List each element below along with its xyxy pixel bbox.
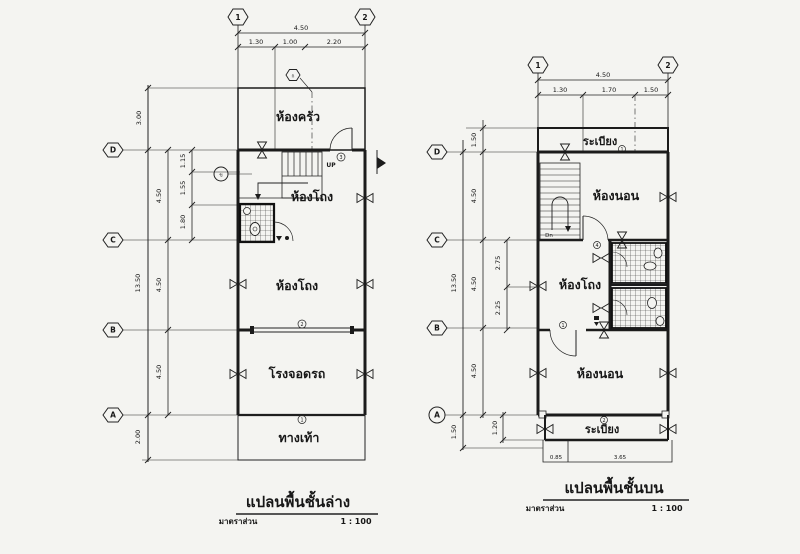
dim-sub-2: 1.55	[179, 181, 187, 195]
left-side-dimensions: 3.00 13.50 4.50 4.50 4.50 1.15 1.55 1.80…	[103, 85, 252, 463]
right-title-block: แปลนพื้นชั้นบน มาตราส่วน 1 : 100	[526, 476, 689, 513]
wall-tag-c-label: 4	[595, 243, 598, 249]
left-bathroom	[240, 204, 293, 242]
left-scale-label: มาตราส่วน	[219, 517, 258, 526]
dim-row-2: 4.50	[155, 278, 163, 292]
sink-icon	[244, 208, 251, 215]
right-scale-value: 1 : 100	[651, 504, 682, 513]
dim-row-2: 4.50	[470, 277, 478, 291]
toilet-icon	[648, 298, 657, 309]
grid-bubble-c-label: C	[110, 236, 116, 245]
room-label-kitchen: ห้องครัว	[276, 109, 320, 124]
dim-total-top: 4.50	[294, 24, 308, 32]
toilet-icon	[250, 223, 260, 236]
left-top-dimensions: 4.50 1.30 1.00 2.20	[235, 24, 368, 150]
top-balcony: ระเบียง 1	[538, 128, 668, 153]
grid-bubble-d-label: D	[110, 146, 116, 155]
dim-seg-3: 1.50	[644, 86, 658, 94]
bottom-balcony: ระเบียง 0.85 3.65	[537, 415, 676, 462]
sink-icon	[644, 262, 656, 270]
dim-row-1: 4.50	[470, 189, 478, 203]
dim-overall-left: 13.50	[450, 274, 458, 293]
door-dot-icon	[285, 236, 289, 240]
dim-bottom-width-2: 3.65	[614, 455, 627, 461]
dim-row-3: 4.50	[155, 365, 163, 379]
left-plan-title: แปลนพื้นชั้นล่าง	[246, 490, 350, 511]
grid-bubble-1-label: 1	[535, 61, 540, 70]
wall-tag-b-label: 1	[561, 323, 564, 329]
door-marker-icon	[594, 316, 599, 320]
room-label-garage: โรงจอดรถ	[268, 366, 326, 381]
toilet-icon	[654, 248, 662, 258]
right-scale-label: มาตราส่วน	[526, 504, 565, 513]
bedroom-door-arc	[550, 330, 576, 356]
dim-seg-1: 1.30	[249, 38, 263, 46]
dim-bottom-width-1: 0.85	[550, 455, 563, 461]
door-marker-icon	[594, 322, 599, 326]
dim-seg-1: 1.30	[553, 86, 567, 94]
grid-bubble-1-label: 1	[235, 13, 240, 22]
dim-row-3: 4.50	[470, 364, 478, 378]
door-symbol	[593, 254, 609, 263]
stair-tag-label: ข	[219, 174, 222, 179]
dim-sub-1: 1.15	[179, 154, 187, 168]
dim-balcony-top: 1.50	[470, 133, 478, 147]
left-grid-bubbles: 1 2	[228, 9, 375, 88]
grid-bubble-d-label: D	[434, 148, 440, 157]
dim-sub-3: 1.80	[179, 215, 187, 229]
bathroom-door-arc	[274, 222, 293, 241]
dim-2m: 2.00	[134, 430, 142, 444]
door-symbol	[593, 304, 609, 313]
stair-direction-label: UP	[326, 162, 336, 169]
dim-ticks	[460, 125, 510, 451]
left-scale-value: 1 : 100	[340, 517, 371, 526]
grid-bubble-b-label: B	[434, 324, 440, 333]
right-stairs: Dn	[540, 163, 580, 240]
grid-bubble-a-label: A	[434, 411, 440, 420]
dim-seg-3: 2.20	[327, 38, 341, 46]
door-marker-icon	[276, 236, 282, 241]
sink-icon	[656, 317, 664, 326]
dim-total-top: 4.50	[596, 71, 610, 79]
stair-direction-label: Dn	[545, 233, 553, 239]
grid-bubble-c-label: C	[434, 236, 440, 245]
dim-3m: 3.00	[135, 111, 143, 125]
dim-hall-sub-1: 2.75	[494, 256, 502, 270]
right-plan: 1 2 4.50 1.30 1.70 1.50 ระเบียง 1	[427, 57, 689, 513]
room-label-hall-lower: ห้องโถง	[276, 278, 318, 293]
wall-tag-b-label: 2	[300, 322, 303, 328]
dim-hall-sub-2: 2.25	[494, 301, 502, 315]
room-label-bedroom-lower: ห้องนอน	[577, 366, 624, 381]
room-label-bedroom-upper: ห้องนอน	[593, 188, 640, 203]
dim-row-1: 4.50	[155, 189, 163, 203]
dim-seg-2: 1.70	[602, 86, 616, 94]
kitchen-tag-label: ก	[292, 75, 295, 80]
dim-overall-left: 13.50	[134, 274, 142, 293]
grid-bubble-2-label: 2	[362, 13, 367, 22]
stair-arrow-icon	[255, 194, 261, 200]
grid-bubble-b-label: B	[110, 326, 116, 335]
drawing-canvas: 1 2 4.50 1.30 1.00 2.20 ก ห้องครัว	[0, 0, 800, 554]
right-bathrooms	[593, 240, 668, 330]
left-plan: 1 2 4.50 1.30 1.00 2.20 ก ห้องครัว	[103, 9, 386, 526]
right-side-dimensions: 13.50 1.50 1.50 4.50 4.50 4.50 1.20 2.75…	[427, 120, 545, 451]
section-flag-icon	[377, 157, 386, 169]
dim-ticks	[145, 85, 195, 463]
room-label-balcony-bottom: ระเบียง	[585, 423, 619, 436]
right-plan-title: แปลนพื้นชั้นบน	[565, 476, 665, 497]
room-label-walkway: ทางเท้า	[279, 430, 320, 445]
grid-bubble-2-label: 2	[665, 61, 670, 70]
room-label-hall-upper: ห้องโถง	[291, 189, 333, 204]
hall-door-arc	[583, 216, 608, 240]
dim-seg-2: 1.00	[283, 38, 297, 46]
entry-door-arc	[330, 128, 352, 150]
grid-bubble-a-label: A	[110, 411, 116, 420]
left-title-block: แปลนพื้นชั้นล่าง มาตราส่วน 1 : 100	[219, 490, 378, 526]
dim-bottom-inner: 1.20	[491, 421, 499, 435]
wall-tag-a-label: 1	[300, 417, 303, 423]
floor-plan-sheet: 1 2 4.50 1.30 1.00 2.20 ก ห้องครัว	[0, 0, 800, 554]
room-label-balcony-top: ระเบียง	[583, 135, 617, 148]
kitchen: ก ห้องครัว	[238, 70, 365, 151]
wall-tag-d-label: 3	[339, 155, 342, 161]
room-label-hall: ห้องโถง	[559, 277, 601, 292]
dim-bottom-outer: 1.50	[450, 425, 458, 439]
